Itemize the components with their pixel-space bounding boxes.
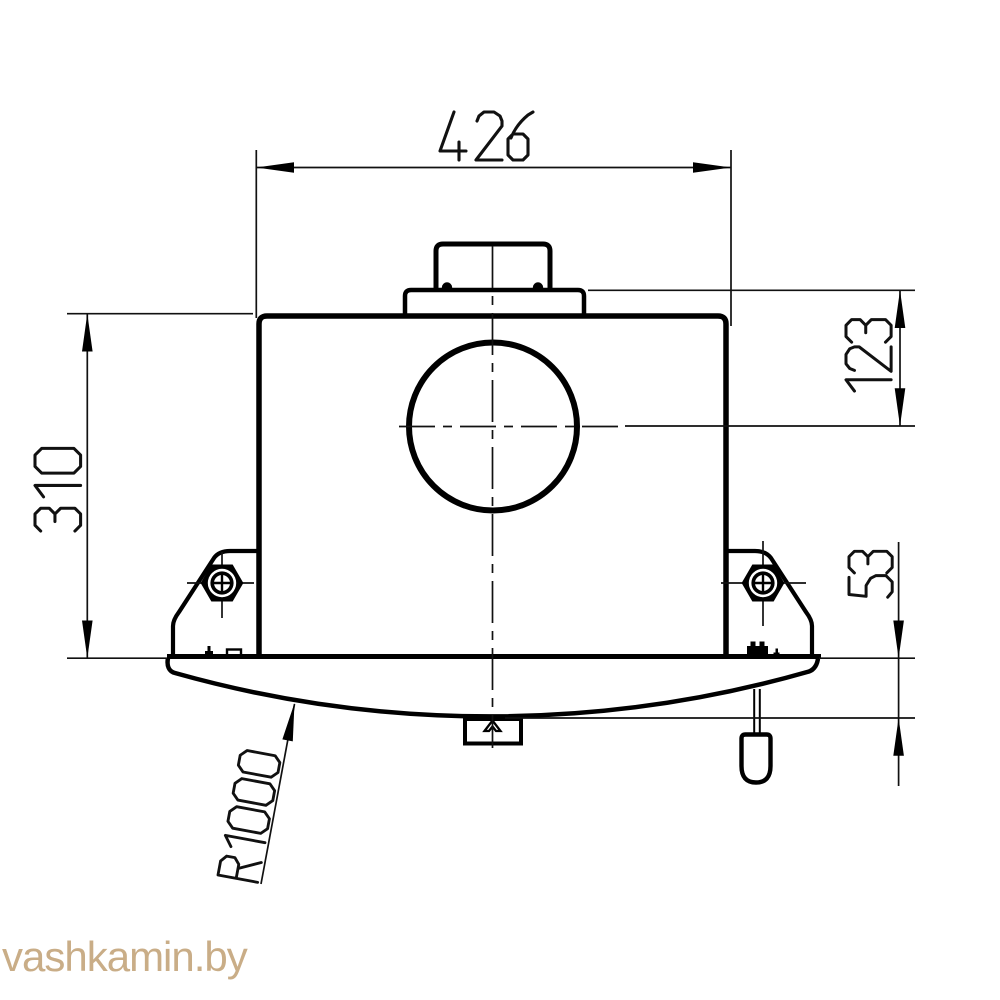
svg-text:vashkamin.by: vashkamin.by — [2, 933, 248, 980]
